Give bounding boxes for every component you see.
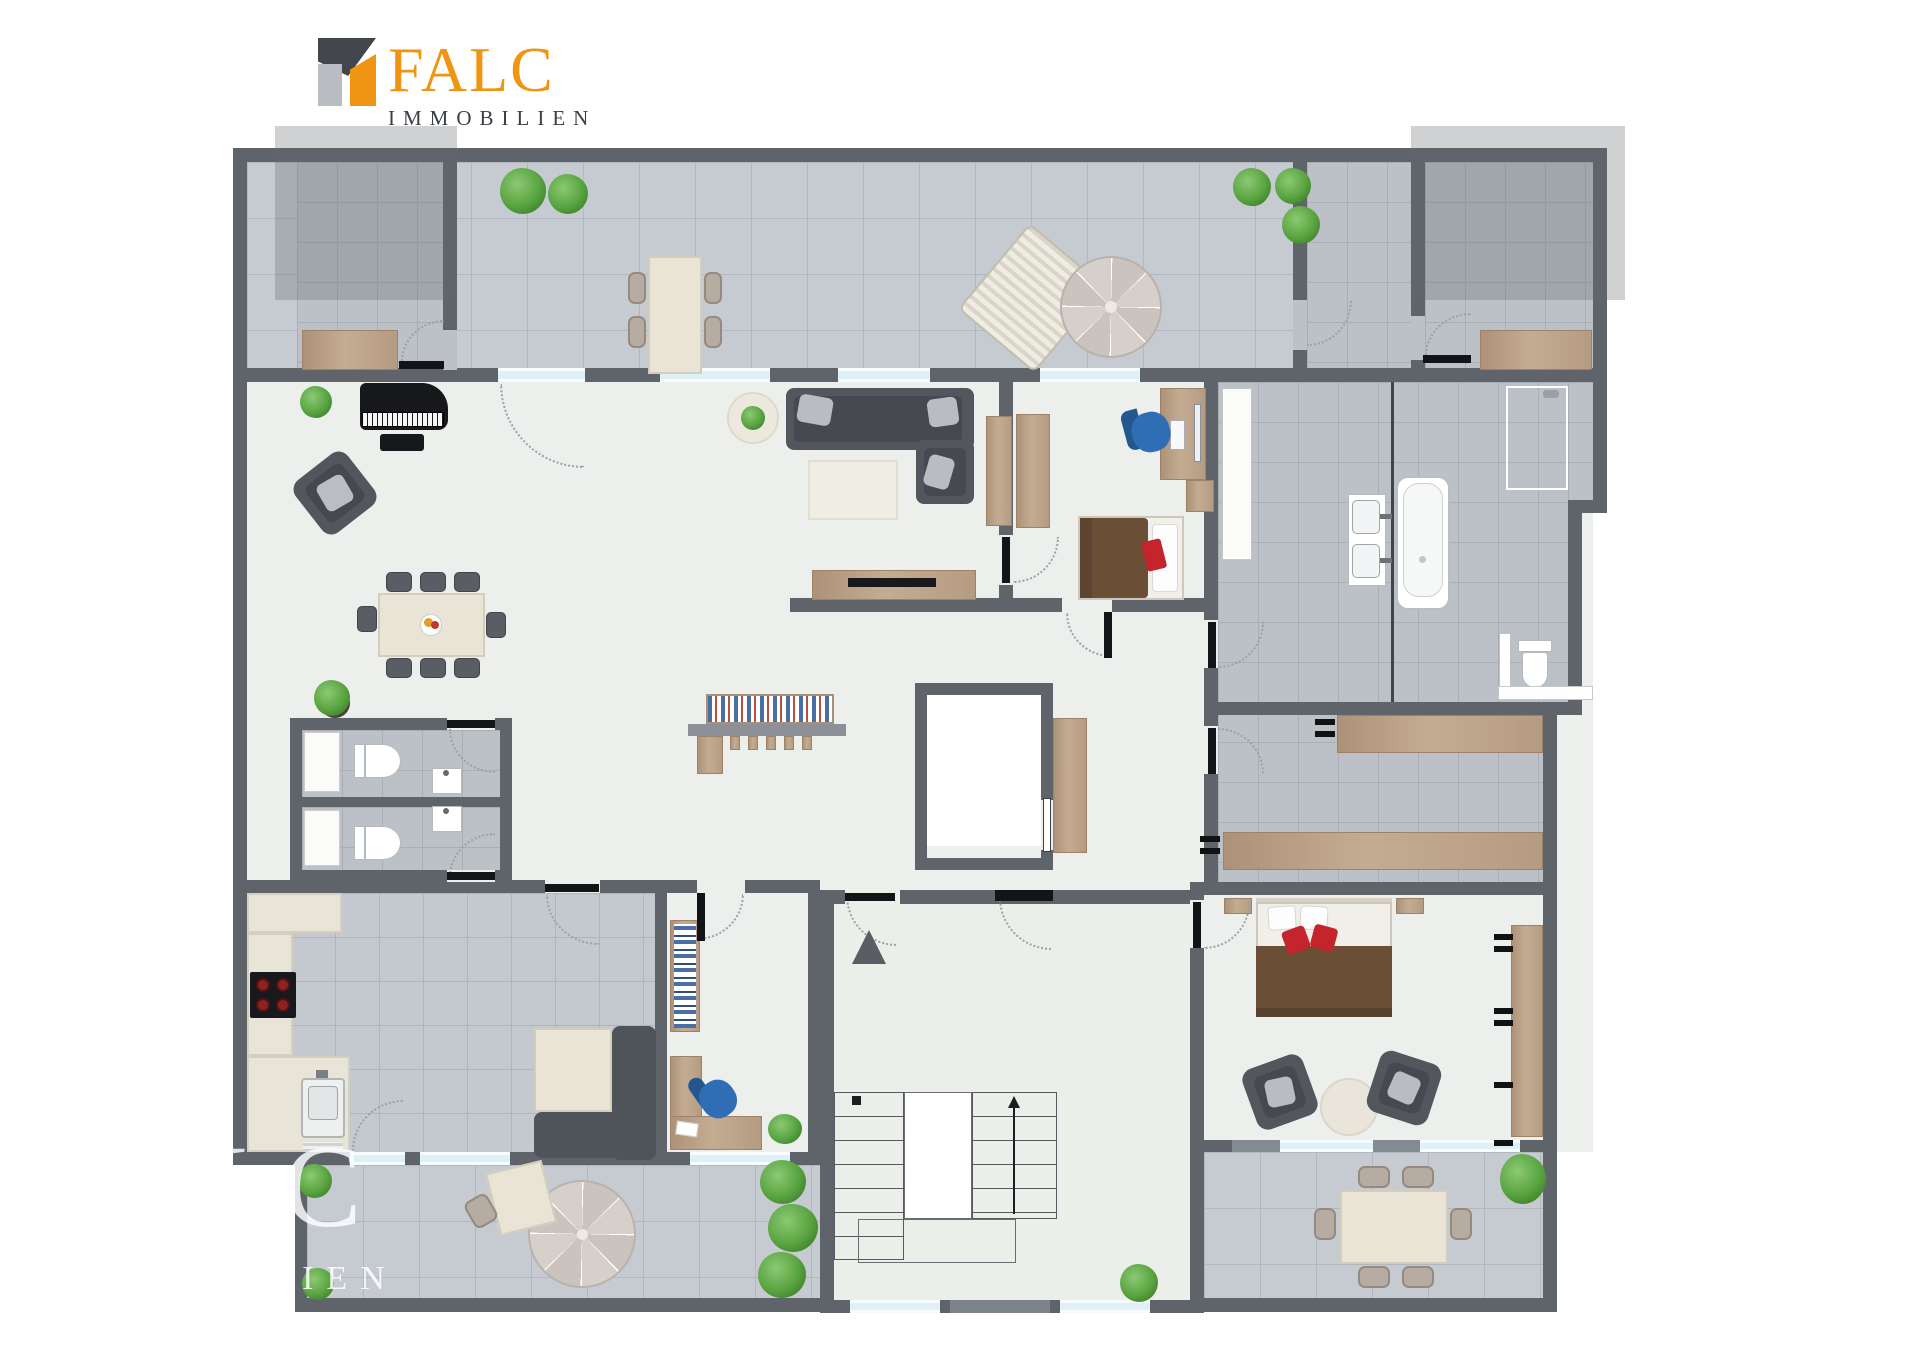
outdoor-chair xyxy=(704,272,722,304)
falc-logo-icon xyxy=(318,38,378,106)
wall-stairhall-right xyxy=(1190,890,1204,1313)
bath-cabinet xyxy=(1222,388,1252,560)
nook-table xyxy=(534,1028,612,1112)
tv xyxy=(848,578,936,587)
dining-chair xyxy=(386,572,412,592)
terrace-plant xyxy=(1233,168,1271,206)
grand-piano-keys xyxy=(362,412,444,427)
dining-chair xyxy=(357,606,377,632)
balcony-bench-right xyxy=(1480,330,1592,370)
dressing-wardrobe xyxy=(1223,832,1543,870)
terrace-plant xyxy=(768,1204,818,1252)
wc-tap xyxy=(443,770,449,776)
dining-chair xyxy=(420,572,446,592)
tap xyxy=(1380,514,1392,519)
window-kitchen xyxy=(420,1152,510,1165)
wall-elevator-right-a xyxy=(1041,683,1053,800)
burner xyxy=(276,978,290,992)
window-kitchen-door xyxy=(350,1152,405,1165)
outdoor-dining-table xyxy=(1340,1190,1448,1264)
toilet-bowl xyxy=(365,744,401,778)
terrace-plant xyxy=(302,1268,334,1300)
drainboard xyxy=(303,1142,343,1152)
wall-bedroom1-bottom xyxy=(1013,598,1218,612)
wardrobe-handle xyxy=(1494,946,1513,952)
outdoor-chair xyxy=(1314,1208,1336,1240)
toilet-bowl xyxy=(365,826,401,860)
bed2-pillow xyxy=(1267,905,1297,931)
stove xyxy=(250,972,296,1018)
study-plant xyxy=(768,1114,802,1144)
wardrobe-handle xyxy=(1315,731,1335,737)
desk-paper xyxy=(675,1121,699,1138)
dining-chair xyxy=(386,658,412,678)
door-bedroom2-terrace-2 xyxy=(1373,1140,1420,1152)
monitor xyxy=(1194,404,1201,462)
opening-bedroom1-bottom xyxy=(1062,598,1112,612)
bath-shelf xyxy=(1498,686,1593,700)
shadow-top-right xyxy=(1411,126,1625,300)
shower xyxy=(1506,386,1568,490)
terrace-plant xyxy=(1500,1154,1546,1204)
coat-rack-block xyxy=(697,736,723,774)
outdoor-chair xyxy=(1358,1266,1390,1288)
terrace-plant xyxy=(1275,168,1311,204)
wall-stairhall-left xyxy=(820,890,834,1313)
wardrobe-handle xyxy=(1200,836,1220,842)
terrace-plant xyxy=(1120,1264,1158,1302)
sink xyxy=(1352,500,1380,534)
wardrobe-handle xyxy=(1494,934,1513,940)
door-leaf xyxy=(845,893,895,901)
wc-cabinet xyxy=(304,810,340,866)
sofa-cushion xyxy=(926,396,960,428)
dining-chair xyxy=(454,572,480,592)
coat-rack-hook xyxy=(730,736,740,750)
wall-elevator-bottom xyxy=(915,858,1053,870)
wall-right-jog xyxy=(1568,500,1607,513)
outdoor-chair xyxy=(1358,1166,1390,1188)
nightstand xyxy=(1396,898,1424,914)
keyboard xyxy=(1170,420,1185,450)
burner xyxy=(276,998,290,1012)
door-leaf xyxy=(447,720,495,728)
wall-wc-right xyxy=(500,718,512,882)
outdoor-chair xyxy=(628,272,646,304)
kitchen-counter xyxy=(247,893,342,933)
door-leaf xyxy=(399,361,444,369)
bed1-fold xyxy=(1080,518,1092,598)
terrace-plant xyxy=(760,1160,806,1204)
fruit xyxy=(431,621,439,629)
bed2-footline xyxy=(1256,1008,1392,1017)
wardrobe-handle xyxy=(1200,848,1220,854)
bed2-blanket xyxy=(1256,946,1392,1016)
piano-bench xyxy=(380,434,424,451)
study-books xyxy=(674,924,696,1028)
wall-wc-mid xyxy=(290,797,500,807)
wall-kitchen-study xyxy=(655,893,667,1152)
door-leaf xyxy=(1193,902,1201,948)
glass-partition xyxy=(1391,382,1394,702)
door-leaf xyxy=(1104,612,1112,658)
floor-bathroom-nook xyxy=(1568,382,1593,513)
elevator-cab xyxy=(927,695,1041,846)
stairs-arrow-head xyxy=(1008,1096,1020,1108)
coat-rack-books xyxy=(706,694,834,724)
bedroom2-wardrobe xyxy=(1511,925,1543,1137)
opening-vestibule xyxy=(1293,300,1307,350)
door-leaf xyxy=(1208,622,1216,668)
terrace-plant xyxy=(1282,206,1320,244)
toilet-tank xyxy=(354,744,365,778)
coat-rack-hook xyxy=(748,736,758,750)
logo-subtitle: IMMOBILIEN xyxy=(388,106,596,131)
toilet-tank xyxy=(354,826,365,860)
rug-plant xyxy=(741,406,765,430)
wall-study-right xyxy=(808,880,820,1165)
floor-plan xyxy=(0,0,1920,1357)
wardrobe-handle xyxy=(1494,1140,1513,1146)
north-arrow xyxy=(852,930,886,964)
wall-right-mid xyxy=(1568,513,1582,715)
wardrobe-handle xyxy=(1494,1008,1513,1014)
terrace-plant xyxy=(298,1164,332,1198)
bedroom1-wardrobe xyxy=(1016,414,1050,528)
bedroom2-armchair-cushion xyxy=(1263,1075,1296,1108)
elevator-door xyxy=(1043,798,1051,852)
wall-bathroom-bottom xyxy=(1210,702,1582,715)
wc-cabinet xyxy=(304,732,340,792)
logo-shape-gray xyxy=(318,64,342,106)
outdoor-table-top xyxy=(648,256,702,374)
parasol-bottom-hub xyxy=(577,1229,588,1240)
bedside-table xyxy=(1186,480,1214,512)
opening-balcony-right xyxy=(1411,316,1425,360)
parasol-top-hub xyxy=(1105,301,1117,313)
window-living-door xyxy=(498,368,585,382)
outdoor-chair xyxy=(1402,1266,1434,1288)
door-leaf xyxy=(1208,728,1216,774)
door-bedroom2-terrace-1 xyxy=(1232,1140,1280,1152)
door-leaf xyxy=(545,884,599,892)
outdoor-chair xyxy=(628,316,646,348)
wardrobe-handle xyxy=(1494,1020,1513,1026)
toilet-bowl xyxy=(1522,652,1548,688)
opening-balcony-left xyxy=(443,330,457,370)
kitchen-sink-basin xyxy=(308,1086,338,1120)
coat-rack-hook xyxy=(784,736,794,750)
wall-dressing-right xyxy=(1543,715,1557,895)
burner xyxy=(256,998,270,1012)
coat-rack-hook xyxy=(802,736,812,750)
window-bedroom2-1 xyxy=(1280,1140,1373,1152)
door-leaf xyxy=(1002,537,1010,583)
door-leaf-entry xyxy=(995,890,1053,901)
dining-chair xyxy=(454,658,480,678)
wall-elevator-right-b xyxy=(1041,850,1053,870)
stairs-start-dot xyxy=(852,1096,861,1105)
window-bedroom1 xyxy=(1040,368,1140,382)
logo-text: FALC IMMOBILIEN xyxy=(388,38,596,131)
terrace-plant xyxy=(758,1252,806,1298)
floor-plan-page: FALC IMMOBILIEN FALC IMMOBILIEN xyxy=(0,0,1920,1357)
stairs-landing xyxy=(858,1219,1016,1263)
wall-bottom-right xyxy=(1204,1298,1557,1312)
wall-hall-tv xyxy=(790,598,1013,612)
outdoor-chair xyxy=(704,316,722,348)
wc-tap xyxy=(443,808,449,814)
nook-bench xyxy=(534,1112,656,1158)
shower-head xyxy=(1543,390,1559,398)
living-rug xyxy=(808,460,898,520)
bathtub-drain xyxy=(1419,556,1426,563)
wall-bottom-left xyxy=(295,1298,834,1312)
toilet-tank xyxy=(1518,640,1552,652)
wall-elevator-top xyxy=(915,683,1053,695)
wall-elevator-left xyxy=(915,683,927,870)
outdoor-chair xyxy=(1402,1166,1434,1188)
burner xyxy=(256,978,270,992)
window-stairhall-1 xyxy=(850,1300,940,1313)
outdoor-chair xyxy=(1450,1208,1472,1240)
dining-chair xyxy=(420,658,446,678)
door-leaf xyxy=(1423,355,1471,363)
door-leaf xyxy=(697,893,705,941)
stairs-arrow-line xyxy=(1013,1104,1015,1214)
shadow-top-left xyxy=(275,126,457,300)
coat-rack-hook xyxy=(766,736,776,750)
sofa-cushion xyxy=(796,393,834,426)
door-leaf xyxy=(447,872,495,880)
bathtub-inner xyxy=(1403,483,1443,597)
logo: FALC IMMOBILIEN xyxy=(318,38,596,131)
balcony-bench-left xyxy=(302,330,398,370)
kitchen-faucet xyxy=(316,1070,328,1078)
window-living-2 xyxy=(838,368,930,382)
logo-brand: FALC xyxy=(388,38,596,102)
terrace-plant xyxy=(548,174,588,214)
toilet-partition xyxy=(1500,634,1510,686)
wall-left xyxy=(233,148,247,1165)
door-building-entry xyxy=(950,1300,1050,1313)
opening-study xyxy=(697,880,745,893)
stairs-void xyxy=(904,1092,972,1219)
tap xyxy=(1380,558,1392,563)
wardrobe-handle xyxy=(1494,1082,1513,1088)
wall-bedroom2-right xyxy=(1543,895,1557,1152)
wall-bedroom2-top xyxy=(1190,882,1557,895)
living-plant xyxy=(300,386,332,418)
terrace-plant xyxy=(500,168,546,214)
coat-rack-board xyxy=(688,724,846,736)
dining-chair xyxy=(486,612,506,638)
dressing-wardrobe xyxy=(1337,715,1543,753)
hall-cabinet xyxy=(1053,718,1087,853)
sideboard xyxy=(986,416,1012,526)
sink xyxy=(1352,544,1380,578)
living-plant xyxy=(314,680,350,716)
wardrobe-handle xyxy=(1315,719,1335,725)
